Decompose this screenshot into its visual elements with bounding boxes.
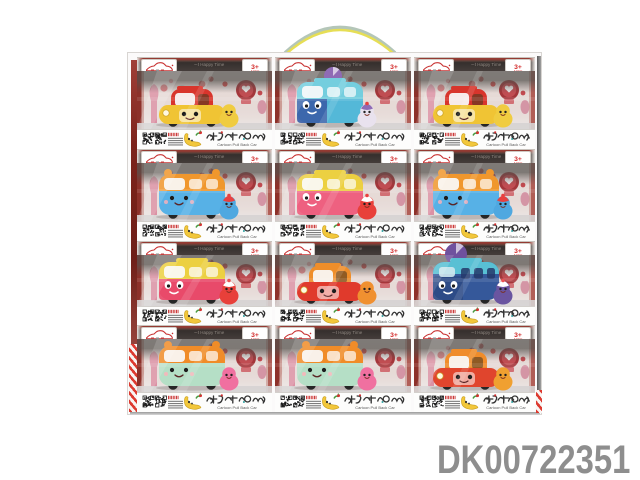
- svg-text:Cartoon Pull Back Car: Cartoon Pull Back Car: [355, 405, 395, 410]
- svg-text:Cartoon Pull Back Car: Cartoon Pull Back Car: [217, 319, 257, 324]
- svg-text:Cartoon Pull Back Car: Cartoon Pull Back Car: [355, 319, 395, 324]
- svg-text:Cartoon Pull Back Car: Cartoon Pull Back Car: [486, 142, 526, 147]
- svg-text:Cartoon Pull Back Car: Cartoon Pull Back Car: [486, 405, 526, 410]
- svg-text:Cartoon Pull Back Car: Cartoon Pull Back Car: [217, 405, 257, 410]
- svg-text:Cartoon Pull Back Car: Cartoon Pull Back Car: [486, 319, 526, 324]
- svg-text:Cartoon Pull Back Car: Cartoon Pull Back Car: [217, 142, 257, 147]
- svg-text:Cartoon Pull Back Car: Cartoon Pull Back Car: [355, 142, 395, 147]
- svg-text:Cartoon Pull Back Car: Cartoon Pull Back Car: [355, 234, 395, 239]
- svg-text:Cartoon Pull Back Car: Cartoon Pull Back Car: [217, 234, 257, 239]
- svg-text:Cartoon Pull Back Car: Cartoon Pull Back Car: [486, 234, 526, 239]
